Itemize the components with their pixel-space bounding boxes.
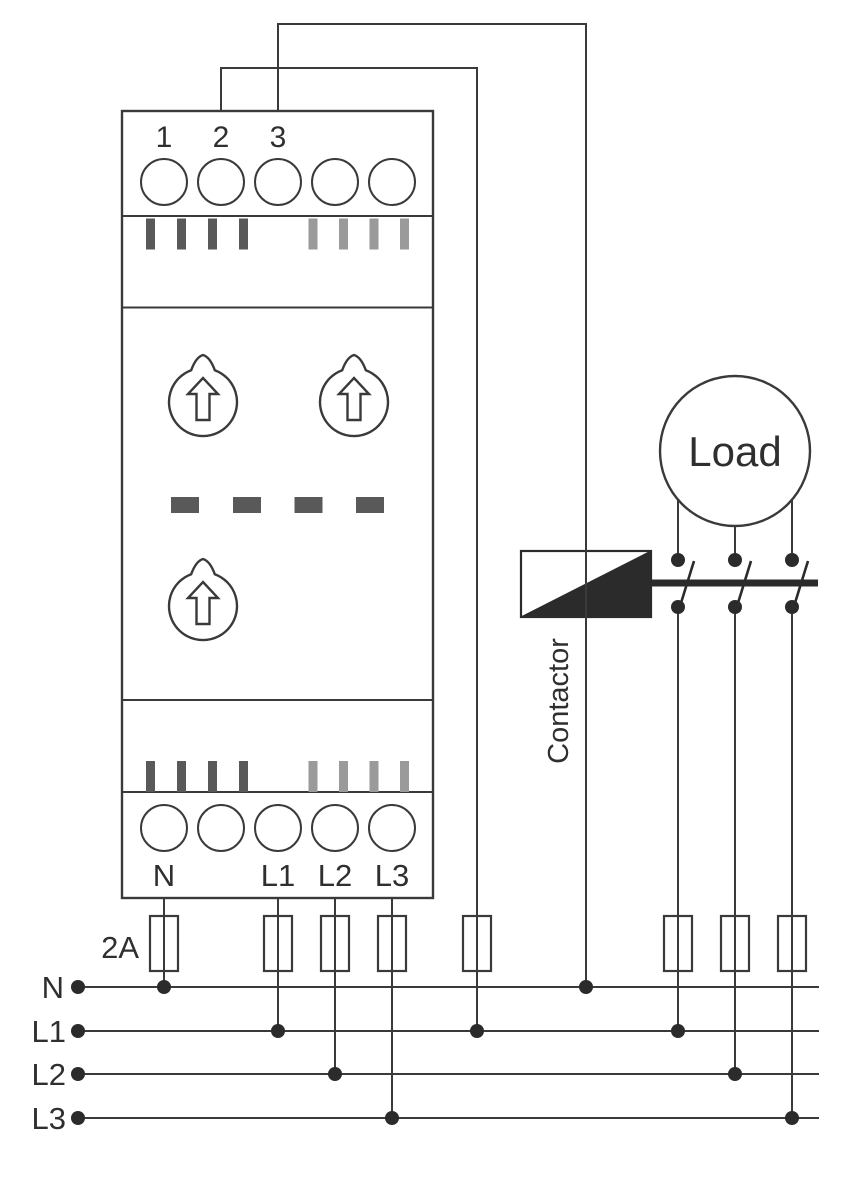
contact-dot bbox=[728, 600, 742, 614]
terminal-circle bbox=[141, 159, 187, 205]
terminal-circle bbox=[255, 159, 301, 205]
contact-dot bbox=[785, 600, 799, 614]
contact-dot bbox=[671, 600, 685, 614]
bus-labels: N L1 L2 L3 bbox=[32, 970, 66, 1136]
terminal-label-n: N bbox=[153, 858, 175, 893]
display-dash bbox=[171, 497, 199, 513]
load-symbol: Load bbox=[660, 376, 810, 526]
contact-dot bbox=[728, 553, 742, 567]
terminal-circle bbox=[198, 159, 244, 205]
bus-label-n: N bbox=[42, 970, 64, 1005]
terminal-circle bbox=[198, 805, 244, 851]
terminal-number-2: 2 bbox=[213, 121, 230, 154]
junction-dot bbox=[71, 1067, 85, 1081]
wiring-diagram: 2A 1 2 3 bbox=[0, 0, 855, 1183]
load-label: Load bbox=[688, 428, 781, 475]
junction-dot bbox=[385, 1111, 399, 1125]
contactor-label: Contactor bbox=[543, 638, 575, 764]
junction-dot bbox=[271, 1024, 285, 1038]
bus-label-l3: L3 bbox=[32, 1101, 66, 1136]
bus-lines bbox=[78, 987, 818, 1118]
junction-dot bbox=[671, 1024, 685, 1038]
junction-dot bbox=[71, 980, 85, 994]
contact-dot bbox=[785, 553, 799, 567]
junction-dot bbox=[157, 980, 171, 994]
terminal-number-1: 1 bbox=[156, 121, 173, 154]
terminal-circle bbox=[369, 805, 415, 851]
terminal-number-3: 3 bbox=[270, 121, 287, 154]
junction-dot bbox=[785, 1111, 799, 1125]
display-dash bbox=[295, 497, 323, 513]
terminal-circle bbox=[312, 159, 358, 205]
junction-dot bbox=[728, 1067, 742, 1081]
junction-dot bbox=[579, 980, 593, 994]
bus-label-l2: L2 bbox=[32, 1057, 66, 1092]
junction-dot bbox=[71, 1111, 85, 1125]
diagram-canvas: 2A 1 2 3 bbox=[0, 0, 855, 1183]
fuse-rating-label: 2A bbox=[101, 930, 139, 965]
device-outline bbox=[122, 111, 433, 898]
terminal-circle bbox=[369, 159, 415, 205]
terminal-circle bbox=[312, 805, 358, 851]
terminal-label-l3: L3 bbox=[375, 858, 409, 893]
terminal-label-l1: L1 bbox=[261, 858, 295, 893]
display-dash bbox=[233, 497, 261, 513]
display-dash bbox=[356, 497, 384, 513]
contact-dot bbox=[671, 553, 685, 567]
junction-dot bbox=[71, 1024, 85, 1038]
junction-dot bbox=[328, 1067, 342, 1081]
bus-label-l1: L1 bbox=[32, 1014, 66, 1049]
terminal-circle bbox=[255, 805, 301, 851]
relay-device: 1 2 3 bbox=[122, 111, 433, 898]
terminal-label-l2: L2 bbox=[318, 858, 352, 893]
junction-dot bbox=[470, 1024, 484, 1038]
terminal-circle bbox=[141, 805, 187, 851]
